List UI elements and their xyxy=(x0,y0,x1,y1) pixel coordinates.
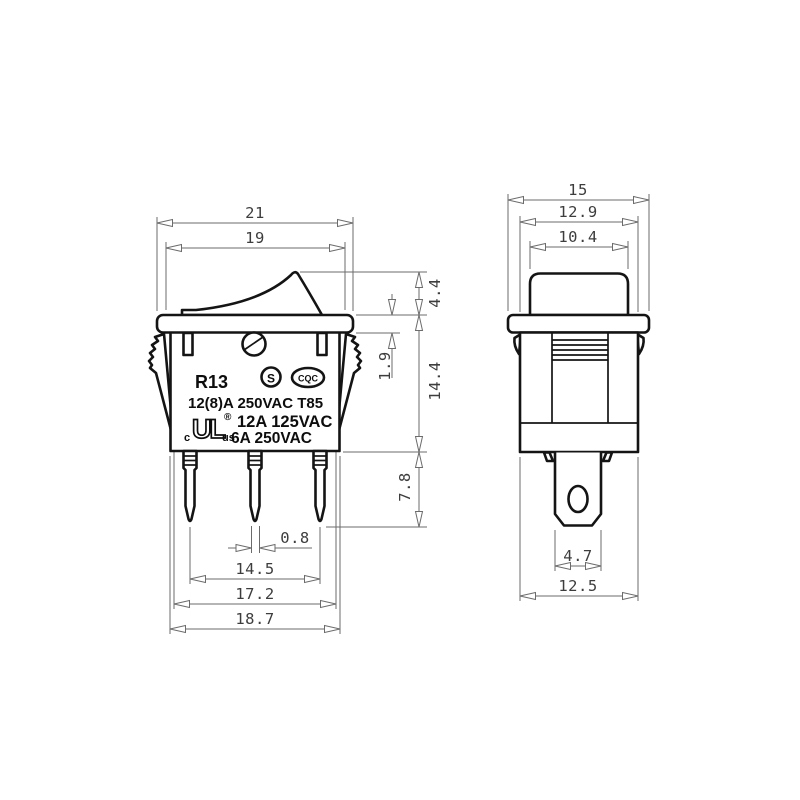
front-view: 21 19 4.4 1.9 14.4 7.8 0.8 14.5 17.2 18.… xyxy=(149,204,444,634)
pin-right xyxy=(314,451,327,521)
side-view: 15 12.9 10.4 4.7 12.5 xyxy=(508,181,649,601)
dim-terminal-width: 4.7 xyxy=(563,547,593,565)
dim-body-depth: 12.9 xyxy=(558,203,597,221)
rating-line2: 12A 125VAC xyxy=(237,413,332,431)
ul-c-letter: c xyxy=(184,432,190,444)
dim-rocker-width: 19 xyxy=(245,229,265,247)
post-right xyxy=(318,333,327,355)
cqc-cert-letters: CQC xyxy=(298,374,319,384)
dim-bezel-thickness: 1.9 xyxy=(376,351,394,381)
ul-letters: UL xyxy=(192,414,225,444)
technical-drawing-page: 21 19 4.4 1.9 14.4 7.8 0.8 14.5 17.2 18.… xyxy=(0,0,800,800)
model-label: R13 xyxy=(195,372,228,392)
bezel-side xyxy=(508,315,649,333)
dim-rocker-height: 4.4 xyxy=(426,278,444,308)
dim-bezel-depth: 15 xyxy=(568,181,588,199)
dim-body-bottom-depth: 12.5 xyxy=(558,577,597,595)
pin-left xyxy=(184,451,197,521)
snap-tab-right xyxy=(603,453,612,462)
snap-tab-left xyxy=(544,453,553,462)
s-cert-letter: S xyxy=(267,372,275,386)
bezel-front xyxy=(157,315,353,333)
pin-center xyxy=(249,451,262,521)
ul-registered-symbol: ® xyxy=(224,412,232,423)
dim-body-width: 18.7 xyxy=(235,610,274,628)
rocker-side xyxy=(530,274,628,316)
dim-body-height: 14.4 xyxy=(426,361,444,400)
side-part xyxy=(508,274,649,526)
terminal-hole xyxy=(569,486,588,512)
dim-rocker-depth: 10.4 xyxy=(558,228,597,246)
post-left xyxy=(184,333,193,355)
dim-bezel-width: 21 xyxy=(245,204,265,222)
dim-pin-width: 0.8 xyxy=(280,529,310,547)
rating-line3: 6A 250VAC xyxy=(231,430,312,447)
rocker-switch-drawing: 21 19 4.4 1.9 14.4 7.8 0.8 14.5 17.2 18.… xyxy=(0,0,800,800)
rocker-front xyxy=(182,272,322,315)
front-part: R13 S CQC 12(8)A 250VAC T85 UL c us ® 12… xyxy=(149,272,361,521)
dim-pin-length: 7.8 xyxy=(396,472,414,502)
dim-latch-span: 17.2 xyxy=(235,585,274,603)
dim-pin-pitch: 14.5 xyxy=(235,560,274,578)
rating-line1: 12(8)A 250VAC T85 xyxy=(188,395,323,412)
